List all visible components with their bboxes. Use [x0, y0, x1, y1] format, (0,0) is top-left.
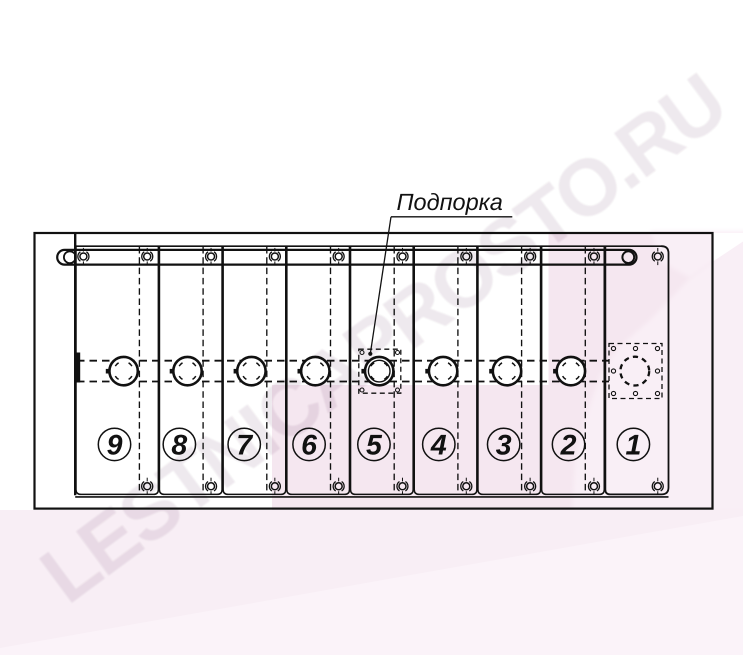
svg-text:3: 3: [496, 430, 512, 462]
svg-text:1: 1: [625, 430, 641, 462]
svg-text:Подпорка: Подпорка: [397, 189, 503, 215]
svg-text:7: 7: [236, 430, 253, 462]
svg-text:9: 9: [107, 430, 123, 462]
svg-text:4: 4: [430, 430, 447, 462]
svg-text:6: 6: [301, 430, 317, 462]
svg-text:8: 8: [171, 430, 187, 462]
svg-text:5: 5: [366, 430, 383, 462]
svg-text:2: 2: [560, 430, 577, 462]
